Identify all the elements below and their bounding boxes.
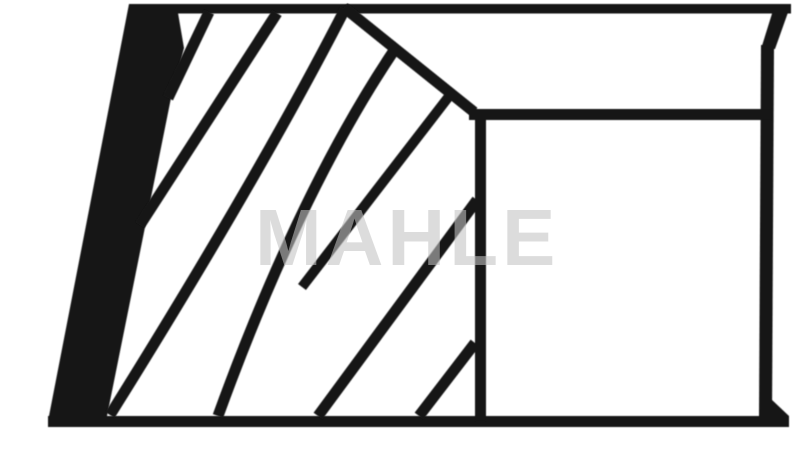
svg-text:MAHLE: MAHLE (255, 193, 559, 282)
